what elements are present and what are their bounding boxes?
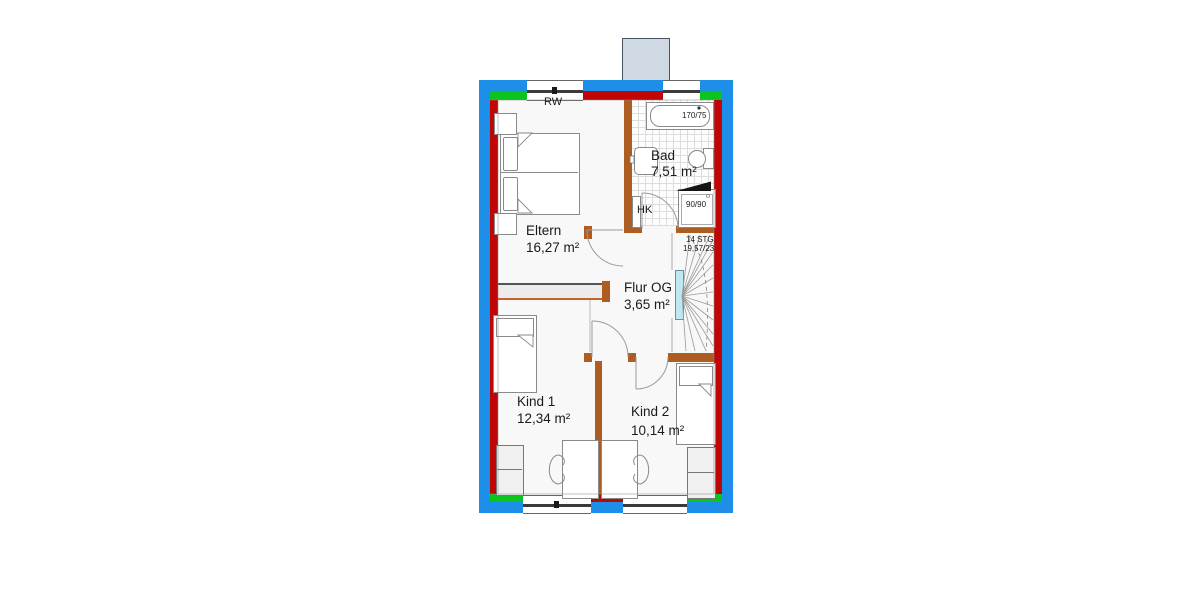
chair-kind1 [549, 455, 564, 484]
stairs-label-line1: 14 STG. [686, 235, 716, 244]
room-name-kind2: Kind 2 [631, 404, 669, 419]
bathtub-size-label: 170/75 [682, 111, 706, 120]
chair-kind2 [634, 455, 649, 484]
shower-partition [676, 182, 711, 192]
room-name-kind1: Kind 1 [517, 394, 555, 409]
room-area-kind1: 12,34 m² [517, 411, 570, 426]
room-name-flur: Flur OG [624, 280, 672, 295]
room-area-kind2: 10,14 m² [631, 423, 684, 438]
radiator-label: HK [637, 204, 652, 216]
lineart-layer [0, 0, 1200, 600]
smoke-detector-label: RW [544, 96, 562, 108]
stairs-label-line2: 19,57/23 [683, 244, 714, 253]
shower-size-label: 90/90 [686, 200, 706, 209]
floorplan-canvas: RW Bad 7,51 m² 170/75 90/90 HK 14 STG. 1… [0, 0, 1200, 600]
room-area-flur: 3,65 m² [624, 297, 670, 312]
room-area-bad: 7,51 m² [651, 164, 697, 179]
room-name-bad: Bad [651, 148, 675, 163]
room-name-eltern: Eltern [526, 223, 561, 238]
room-area-eltern: 16,27 m² [526, 240, 579, 255]
